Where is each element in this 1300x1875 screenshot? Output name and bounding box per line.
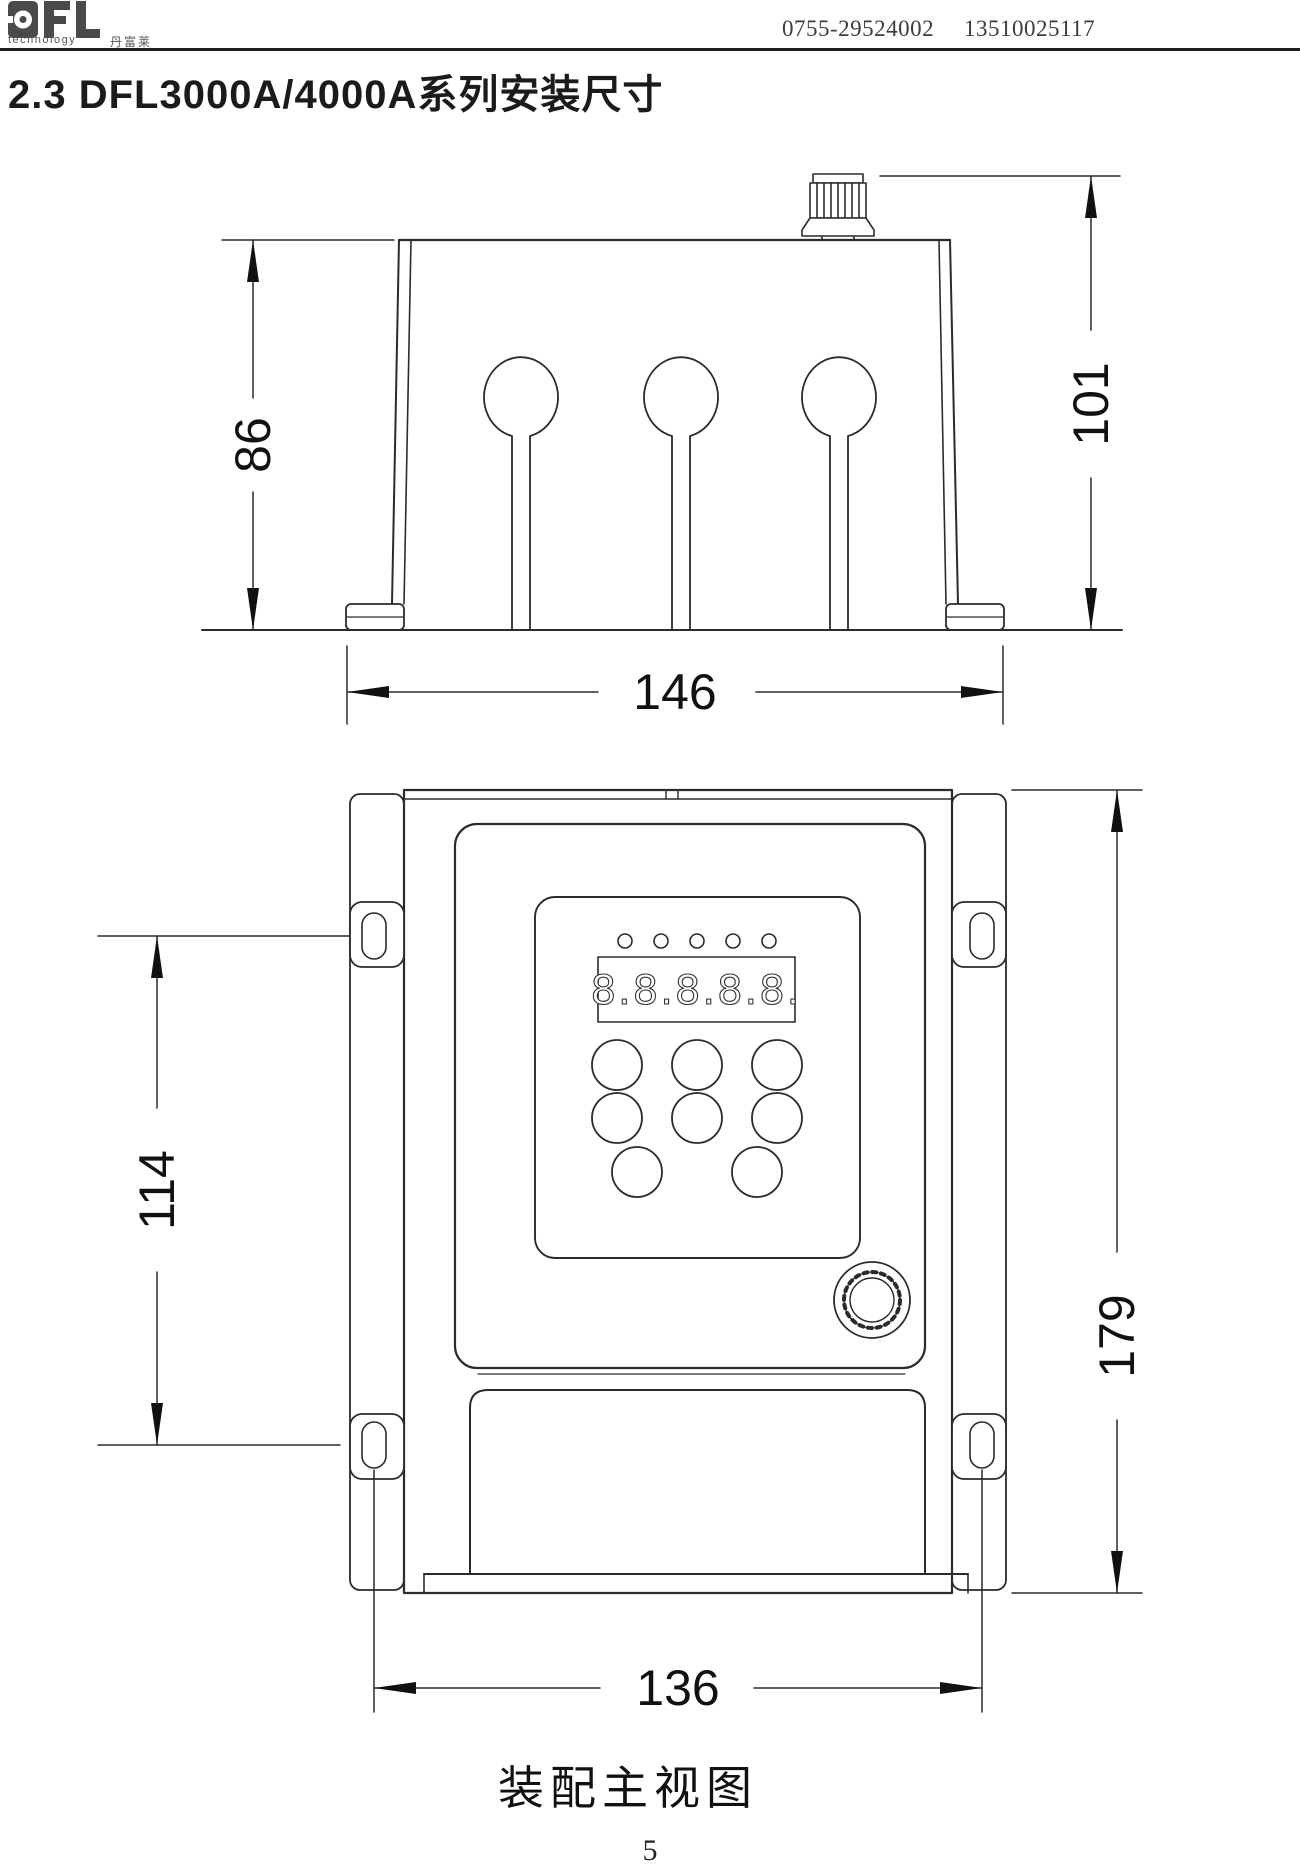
dim-label-136: 136 (636, 1660, 719, 1716)
side-view-knob (802, 174, 874, 241)
front-view-drawing: 8.8.8.8.8. (98, 790, 1142, 1712)
manual-page: technology 丹富莱 0755-29524002 13510025117… (0, 0, 1300, 1875)
dim-label-86: 86 (225, 417, 281, 473)
dim-label-179: 179 (1089, 1294, 1145, 1377)
dim-label-101: 101 (1063, 362, 1119, 445)
dim-label-114: 114 (129, 1150, 185, 1230)
dim-179 (1012, 790, 1142, 1593)
page-number: 5 (0, 1834, 1300, 1868)
dim-label-146: 146 (633, 664, 716, 720)
seven-segment-display: 8.8.8.8.8. (591, 957, 802, 1022)
keypad-panel: 8.8.8.8.8. (535, 897, 860, 1258)
cover-knurled-knob (834, 1262, 910, 1338)
display-digits: 8.8.8.8.8. (591, 968, 802, 1014)
installation-dimension-drawing: 8.8.8.8.8. (0, 0, 1300, 1875)
side-view-drawing (202, 174, 1122, 724)
figure-caption: 装配主视图 (0, 1752, 1256, 1818)
